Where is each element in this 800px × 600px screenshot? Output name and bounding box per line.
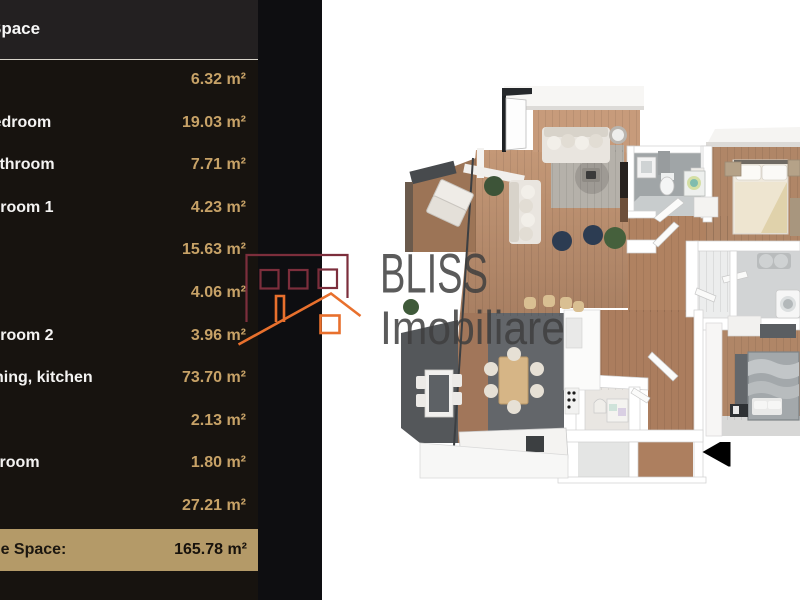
svg-text:BLISS: BLISS (380, 242, 488, 305)
svg-text:Imobiliare: Imobiliare (380, 301, 565, 354)
